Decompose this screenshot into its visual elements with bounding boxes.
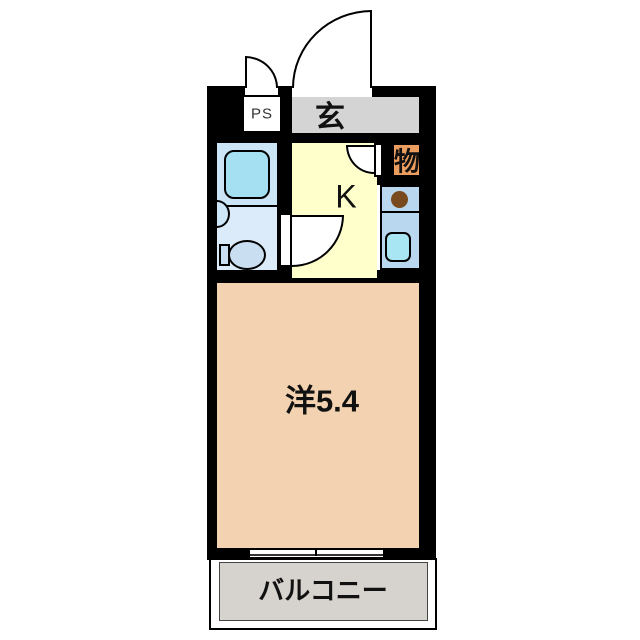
main-room-label: 洋5.4	[285, 376, 359, 421]
wall-band-bathroom-bottom	[207, 270, 302, 283]
closet-label: 物	[394, 142, 420, 179]
entrance-door-swing-icon	[292, 10, 372, 88]
balcony-label: バルコニー	[258, 571, 387, 608]
ps-label: PS	[251, 106, 273, 123]
wall-band-counter-bottom	[377, 270, 436, 283]
toilet-icon	[228, 240, 266, 270]
counter-divider	[380, 211, 421, 213]
ps-door-swing-icon	[245, 56, 278, 88]
window-tick	[315, 550, 317, 556]
bathtub-icon	[224, 150, 270, 199]
closet-door-leaf	[374, 143, 383, 177]
kitchen-label: K	[335, 179, 356, 216]
floor-plan-canvas: PS 玄 物 K 洋5.4 バルコニー	[0, 0, 640, 640]
kitchen-door-leaf	[279, 213, 292, 267]
entrance-label: 玄	[315, 92, 345, 136]
kitchen-sink-icon	[385, 232, 411, 262]
stove-burner-icon	[391, 191, 408, 208]
entrance-area	[292, 97, 419, 133]
wall-left	[207, 86, 217, 560]
